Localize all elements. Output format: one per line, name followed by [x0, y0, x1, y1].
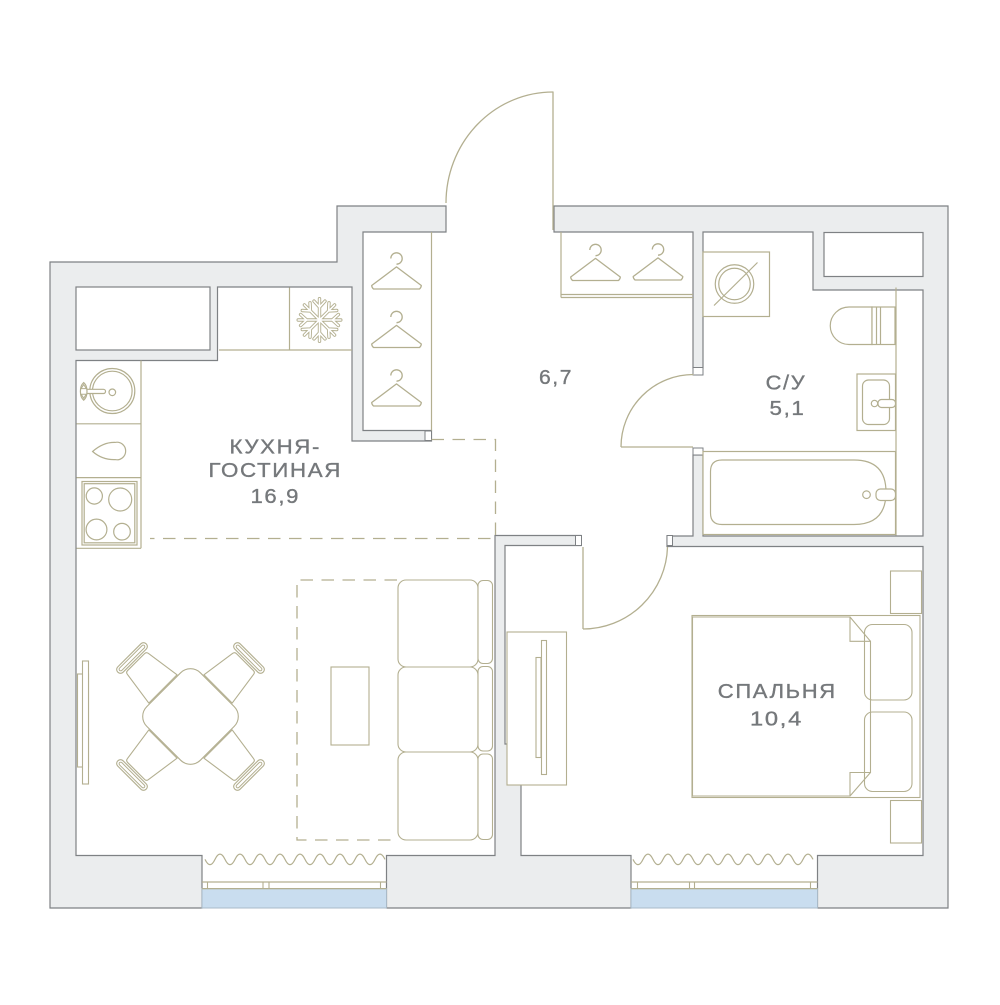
svg-text:С/У: С/У: [766, 372, 807, 395]
svg-text:6,7: 6,7: [539, 366, 573, 389]
svg-text:16,9: 16,9: [251, 485, 301, 508]
svg-text:5,1: 5,1: [770, 397, 806, 420]
svg-text:10,4: 10,4: [750, 707, 803, 730]
svg-text:ГОСТИНАЯ: ГОСТИНАЯ: [209, 459, 343, 482]
svg-text:КУХНЯ-: КУХНЯ-: [230, 436, 322, 459]
svg-text:СПАЛЬНЯ: СПАЛЬНЯ: [718, 680, 837, 703]
